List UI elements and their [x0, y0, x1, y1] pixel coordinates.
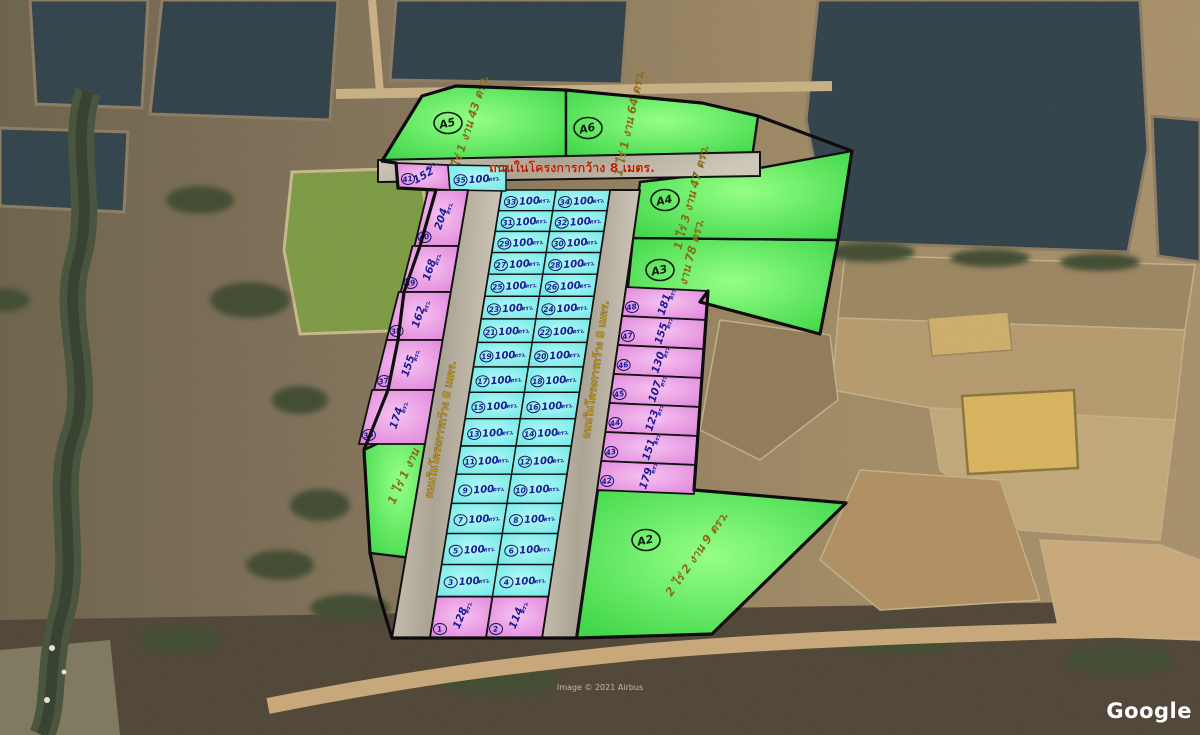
- plot-label-text: 46: [617, 360, 629, 371]
- plot-area: 100: [533, 455, 555, 467]
- plot-number: 12: [519, 457, 530, 467]
- plot-area: 100: [512, 237, 534, 249]
- plot-area: 100: [468, 174, 490, 186]
- plot-number: 3: [448, 578, 454, 587]
- plot-area: 100: [477, 455, 499, 467]
- plot-area-unit: ตรว.: [579, 283, 592, 290]
- plot-area-unit: ตรว.: [534, 578, 547, 585]
- plot-area-unit: ตรว.: [538, 547, 551, 554]
- plot-number: 23: [488, 305, 499, 315]
- plot-area-unit: ตรว.: [548, 487, 561, 494]
- plot-area-unit: ตรว.: [501, 430, 514, 437]
- plot-area-unit: ตรว.: [492, 487, 505, 494]
- aerial-map-view: A11 ไร่ 1 งานA22 ไร่ 2 งาน 9 ตรว.A31 ไร่…: [0, 0, 1200, 735]
- plot-area: 100: [514, 576, 536, 588]
- map-canvas: A11 ไร่ 1 งานA22 ไร่ 2 งาน 9 ตรว.A31 ไร่…: [0, 0, 1200, 735]
- plot-number: 29: [499, 239, 510, 249]
- plot-number: 35: [455, 175, 466, 185]
- plot-number: 31: [502, 218, 513, 228]
- plot-area: 100: [468, 514, 490, 526]
- plot-area-unit: ตรว.: [483, 547, 496, 554]
- plot-area-unit: ตรว.: [572, 329, 585, 336]
- plot-number: 24: [543, 305, 554, 315]
- plot-area: 100: [498, 326, 520, 338]
- plot-number: 32: [556, 218, 567, 228]
- plot-area: 100: [528, 484, 550, 496]
- plot-number: 4: [504, 578, 510, 587]
- plot-area: 100: [573, 195, 595, 207]
- plot-area: 100: [519, 544, 541, 556]
- plot-label-text: 43: [605, 447, 617, 458]
- plot-area: 100: [556, 303, 578, 315]
- plot-number: 26: [546, 282, 557, 292]
- google-logo: Google: [1106, 699, 1192, 723]
- plot-area-unit: ตรว.: [576, 306, 589, 313]
- plot-area: 100: [524, 514, 546, 526]
- plot-label-text: 45: [613, 389, 625, 400]
- plot-area: 100: [563, 259, 585, 271]
- imagery-attribution: Image © 2021 Airbus: [557, 683, 643, 692]
- plot-number: 19: [481, 352, 492, 362]
- plot-number: 6: [508, 546, 514, 555]
- plot-area-unit: ตรว.: [565, 378, 578, 385]
- plot-number: 13: [469, 429, 480, 439]
- road-label-top: ถนนในโครงการกว้าง 8 เมตร.: [489, 160, 655, 175]
- plot-area: 100: [549, 350, 571, 362]
- plot-area-unit: ตรว.: [532, 240, 545, 247]
- plot-area: 100: [458, 576, 480, 588]
- plot-area-unit: ตรว.: [478, 578, 491, 585]
- plot-area: 100: [505, 280, 527, 292]
- plot-area-unit: ตรว.: [521, 306, 534, 313]
- plot-area-unit: ตรว.: [561, 403, 574, 410]
- plot-number: 9: [462, 486, 468, 495]
- plot-area-unit: ตรว.: [568, 353, 581, 360]
- plot-area-unit: ตรว.: [582, 261, 595, 268]
- plot-area: 100: [515, 216, 537, 228]
- plot-area-unit: ตรว.: [592, 198, 605, 205]
- plot-area: 100: [486, 401, 508, 413]
- plot-area: 100: [560, 280, 582, 292]
- plot-number: 5: [453, 546, 459, 555]
- plot-label-text: 48: [626, 302, 638, 313]
- plot-area: 100: [463, 544, 485, 556]
- plot-label-text: 44: [609, 418, 621, 429]
- plot-area-unit: ตรว.: [589, 219, 602, 226]
- plot-area: 100: [509, 259, 531, 271]
- plot-area-unit: ตรว.: [506, 403, 519, 410]
- plot-number: 27: [495, 260, 507, 270]
- plot-area-unit: ตรว.: [586, 240, 599, 247]
- plot-area: 100: [519, 195, 541, 207]
- plot-area: 100: [553, 326, 575, 338]
- plot-number: 21: [485, 328, 496, 338]
- plot-number: 30: [553, 239, 564, 249]
- plot-area-unit: ตรว.: [488, 516, 501, 523]
- plot-number: 18: [532, 377, 543, 387]
- plot-area-unit: ตรว.: [514, 353, 527, 360]
- plot-area-unit: ตรว.: [543, 516, 556, 523]
- plot-number: 28: [550, 260, 561, 270]
- plot-number: 8: [513, 516, 519, 525]
- plot-area-unit: ตรว.: [556, 430, 569, 437]
- plot-area: 100: [473, 484, 495, 496]
- plot-label-text: 42: [601, 476, 613, 487]
- plot-area-unit: ตรว.: [510, 378, 523, 385]
- plot-area-unit: ตรว.: [488, 176, 501, 183]
- plot-area-unit: ตรว.: [528, 261, 541, 268]
- plot-area-unit: ตรว.: [552, 458, 565, 465]
- plot-area-unit: ตรว.: [535, 219, 548, 226]
- plot-number: 16: [528, 402, 539, 412]
- plot-area: 100: [494, 350, 516, 362]
- plot-number: 33: [505, 197, 516, 207]
- plot-number: 10: [515, 486, 526, 496]
- plot-area: 100: [537, 427, 559, 439]
- plot-number: 11: [464, 457, 475, 467]
- plot-area: 100: [541, 401, 563, 413]
- plot-area: 100: [502, 303, 524, 315]
- plot-area: 100: [566, 237, 588, 249]
- plot-number: 15: [473, 402, 484, 412]
- plot-area-unit: ตรว.: [538, 198, 551, 205]
- plot-number: 34: [559, 197, 570, 207]
- plot-number: 20: [536, 352, 547, 362]
- plot-area-unit: ตรว.: [517, 329, 530, 336]
- plot-area: 100: [482, 427, 504, 439]
- plot-area: 100: [490, 375, 512, 387]
- plot-number: 14: [524, 429, 535, 439]
- plot-area: 100: [545, 375, 567, 387]
- plot-area-unit: ตรว.: [497, 458, 510, 465]
- plot-number: 22: [539, 328, 550, 338]
- plot-area: 100: [570, 216, 592, 228]
- plot-number: 25: [492, 282, 503, 292]
- plot-number: 17: [477, 376, 489, 386]
- plot-area-unit: ตรว.: [525, 283, 538, 290]
